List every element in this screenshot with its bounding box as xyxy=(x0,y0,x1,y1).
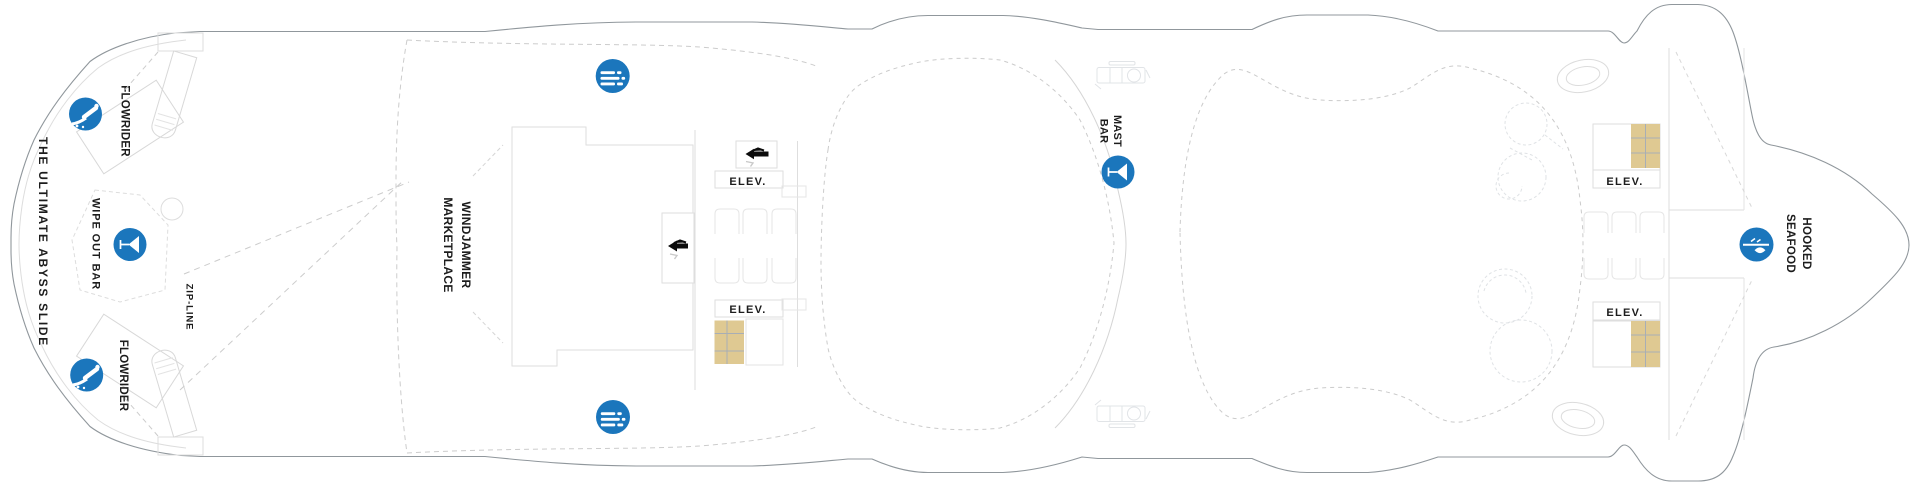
svg-text:ELEV.: ELEV. xyxy=(729,176,766,188)
svg-text:ELEV.: ELEV. xyxy=(1606,307,1643,319)
svg-text:THE ULTIMATE ABYSS SLIDE: THE ULTIMATE ABYSS SLIDE xyxy=(36,137,50,347)
svg-text:ZIP-LINE: ZIP-LINE xyxy=(184,284,195,331)
svg-text:MARKETPLACE: MARKETPLACE xyxy=(441,197,455,292)
svg-text:ELEV.: ELEV. xyxy=(729,304,766,316)
svg-text:HOOKED: HOOKED xyxy=(1800,217,1812,269)
svg-text:MAST: MAST xyxy=(1111,115,1123,147)
svg-text:WINDJAMMER: WINDJAMMER xyxy=(459,202,473,289)
svg-text:ELEV.: ELEV. xyxy=(1606,176,1643,188)
svg-text:BAR: BAR xyxy=(1098,119,1110,143)
svg-text:SEAFOOD: SEAFOOD xyxy=(1784,214,1796,273)
svg-text:FLOWRIDER: FLOWRIDER xyxy=(119,85,131,157)
svg-text:WIPE OUT BAR: WIPE OUT BAR xyxy=(90,198,102,290)
